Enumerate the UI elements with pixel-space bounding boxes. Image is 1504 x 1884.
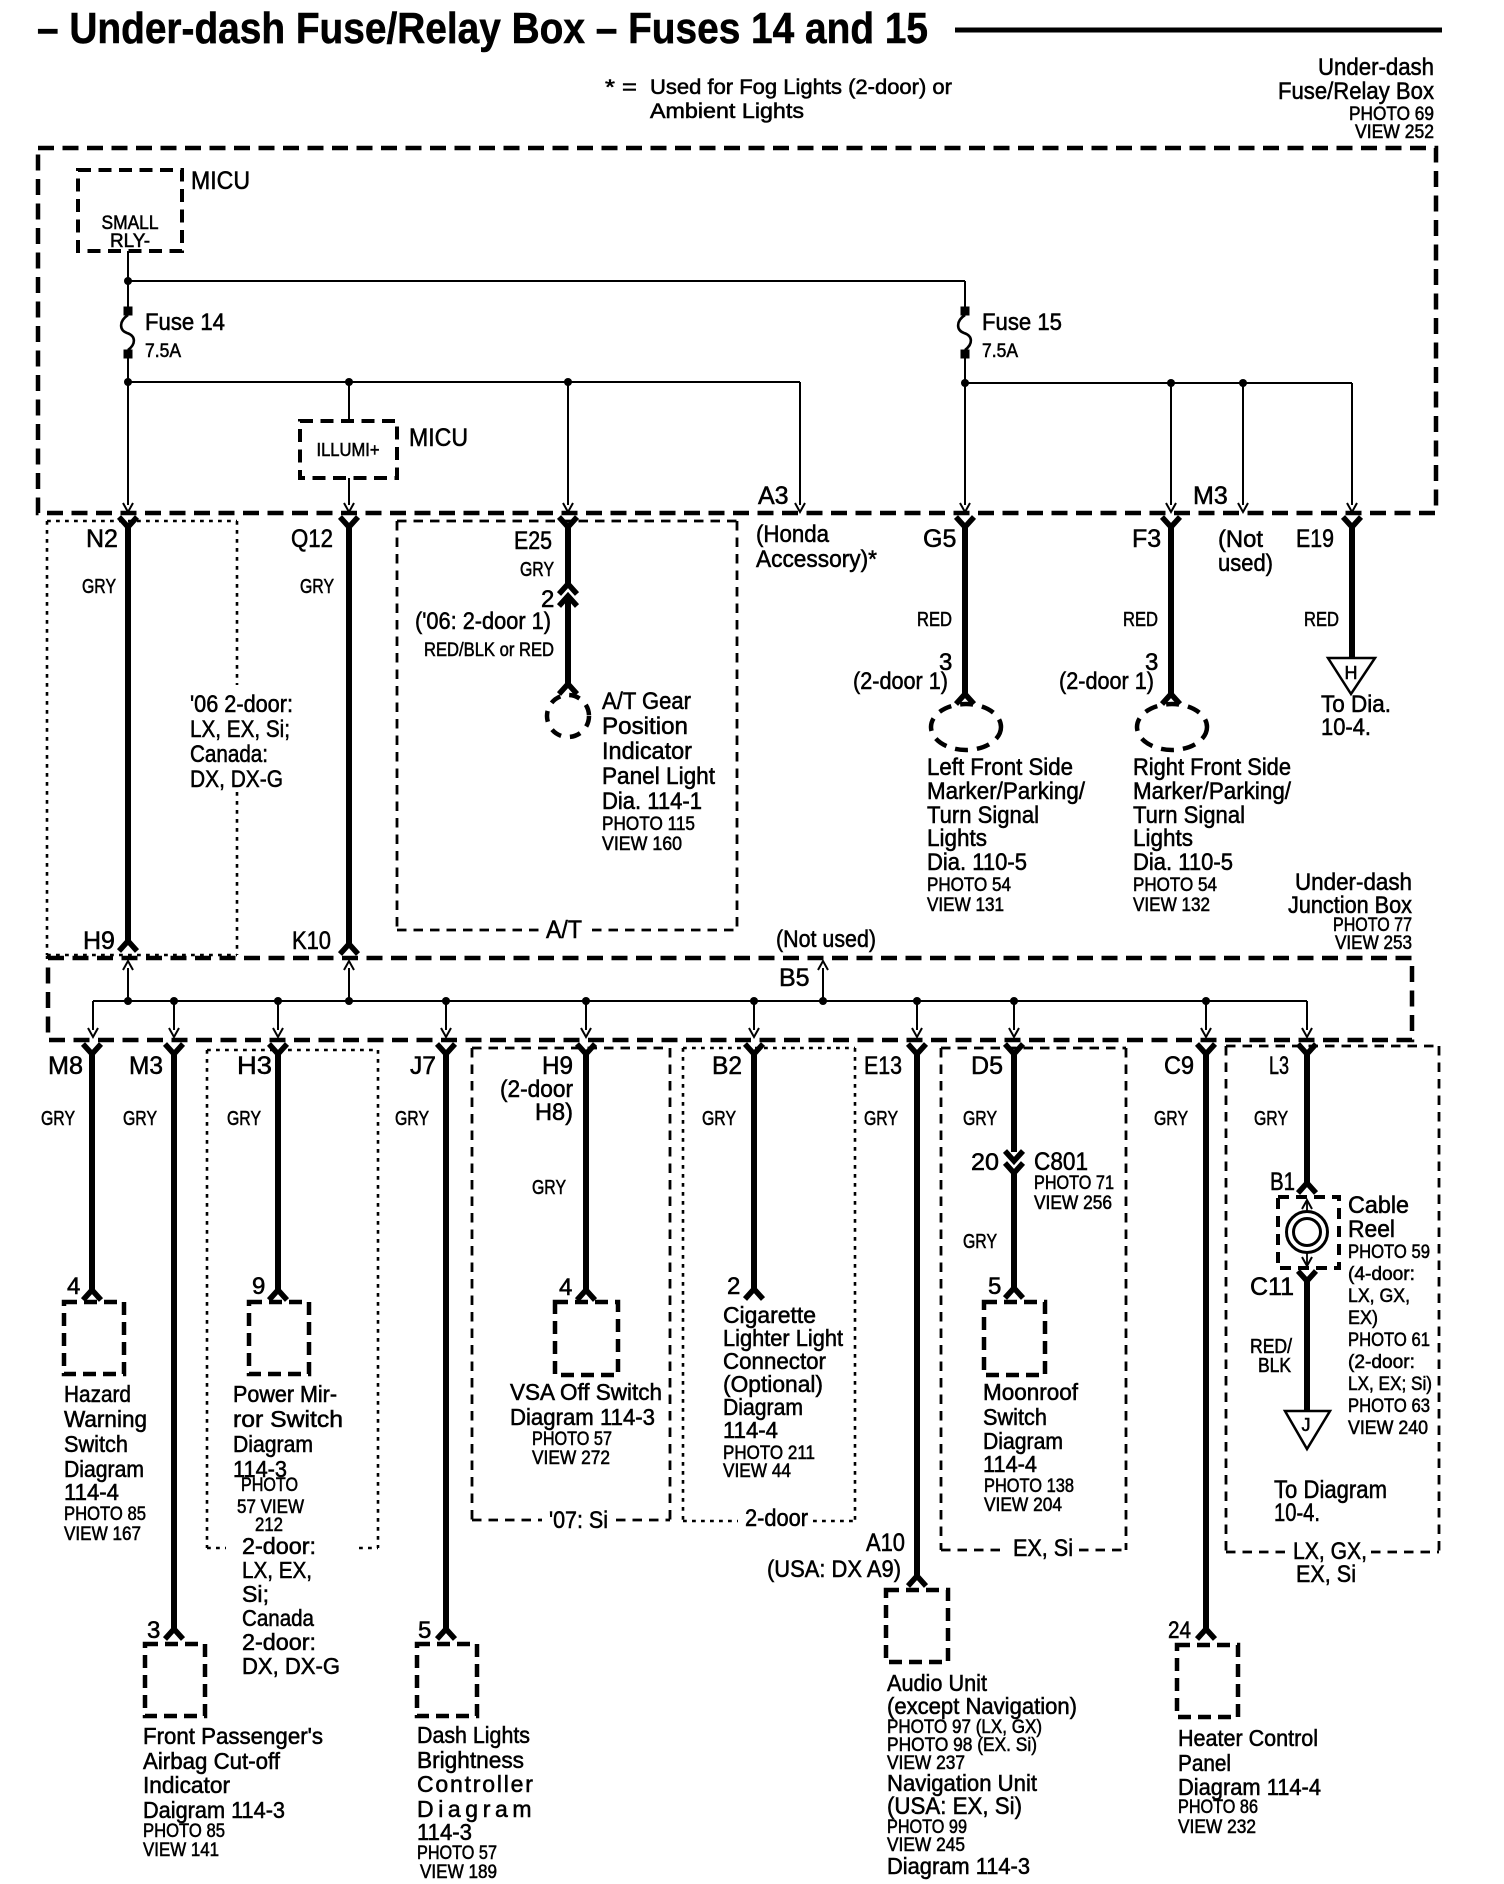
svg-text:PHOTO 138: PHOTO 138 [984, 1476, 1074, 1497]
svg-text:Si;: Si; [242, 1581, 269, 1607]
svg-text:'06 2-door:: '06 2-door: [190, 691, 293, 718]
svg-text:(2-door 1): (2-door 1) [1059, 668, 1154, 695]
svg-text:C801: C801 [1034, 1148, 1088, 1176]
svg-text:VIEW 232: VIEW 232 [1178, 1817, 1256, 1838]
svg-text:Dia. 110-5: Dia. 110-5 [1133, 849, 1233, 876]
svg-text:GRY: GRY [520, 559, 554, 581]
svg-text:GRY: GRY [1154, 1108, 1188, 1130]
svg-text:Heater Control: Heater Control [1178, 1725, 1318, 1751]
svg-text:VIEW 256: VIEW 256 [1034, 1193, 1112, 1214]
svg-text:4: 4 [559, 1274, 572, 1301]
svg-text:VIEW 131: VIEW 131 [927, 895, 1004, 916]
svg-text:LX, GX,: LX, GX, [1348, 1286, 1410, 1307]
svg-text:E19: E19 [1296, 525, 1334, 553]
svg-text:2-door:: 2-door: [242, 1533, 316, 1559]
svg-text:3: 3 [147, 1617, 160, 1644]
svg-text:Warning: Warning [64, 1406, 147, 1432]
svg-text:H: H [1345, 663, 1358, 683]
svg-text:LX, EX,: LX, EX, [242, 1557, 312, 1583]
svg-text:Fuse/Relay Box: Fuse/Relay Box [1278, 78, 1434, 105]
svg-text:PHOTO 63: PHOTO 63 [1348, 1396, 1430, 1417]
svg-text:J7: J7 [410, 1052, 436, 1080]
svg-text:(Honda: (Honda [756, 521, 830, 548]
svg-text:PHOTO 85: PHOTO 85 [64, 1504, 146, 1525]
svg-text:('06: 2-door 1): ('06: 2-door 1) [415, 608, 551, 635]
svg-text:GRY: GRY [532, 1177, 566, 1199]
svg-text:L3: L3 [1269, 1052, 1289, 1080]
svg-text:VIEW 272: VIEW 272 [532, 1448, 610, 1469]
svg-text:PHOTO 54: PHOTO 54 [927, 875, 1011, 896]
svg-text:E25: E25 [514, 527, 552, 555]
svg-text:BLK: BLK [1258, 1355, 1292, 1377]
svg-text:EX, Si: EX, Si [1296, 1561, 1356, 1588]
svg-text:(USA: DX A9): (USA: DX A9) [767, 1556, 901, 1583]
svg-text:VIEW 240: VIEW 240 [1348, 1418, 1428, 1439]
svg-text:RED/BLK or RED: RED/BLK or RED [424, 640, 554, 661]
svg-text:4: 4 [67, 1273, 80, 1300]
svg-text:Front Passenger's: Front Passenger's [143, 1723, 323, 1749]
svg-text:Indicator: Indicator [143, 1772, 230, 1798]
svg-text:Controller: Controller [417, 1771, 535, 1797]
svg-text:F3: F3 [1132, 525, 1161, 553]
svg-text:Dia. 114-1: Dia. 114-1 [602, 788, 702, 815]
svg-text:G5: G5 [923, 525, 956, 553]
svg-text:VIEW 141: VIEW 141 [143, 1840, 219, 1861]
svg-text:GRY: GRY [702, 1108, 736, 1130]
svg-text:A10: A10 [866, 1529, 905, 1557]
svg-text:Brightness: Brightness [417, 1747, 524, 1773]
svg-text:DX, DX-G: DX, DX-G [242, 1653, 340, 1679]
svg-text:10-4.: 10-4. [1321, 714, 1371, 741]
svg-text:GRY: GRY [82, 576, 116, 598]
svg-text:ror Switch: ror Switch [233, 1406, 343, 1432]
svg-text:used): used) [1218, 550, 1273, 577]
svg-text:MICU: MICU [191, 167, 250, 195]
svg-text:7.5A: 7.5A [145, 341, 181, 362]
svg-text:Used for Fog Lights (2-door) o: Used for Fog Lights (2-door) or [650, 76, 952, 99]
svg-text:GRY: GRY [1254, 1108, 1288, 1130]
svg-text:114-4: 114-4 [723, 1417, 778, 1443]
svg-text:PHOTO 54: PHOTO 54 [1133, 875, 1217, 896]
svg-text:Lights: Lights [927, 825, 987, 852]
svg-text:24: 24 [1168, 1617, 1191, 1644]
svg-text:VIEW 44: VIEW 44 [723, 1461, 791, 1482]
svg-text:RLY-: RLY- [110, 231, 150, 252]
svg-text:PHOTO 85: PHOTO 85 [143, 1821, 225, 1842]
svg-text:D5: D5 [971, 1052, 1003, 1080]
svg-text:M3: M3 [1193, 482, 1228, 510]
svg-text:MICU: MICU [409, 424, 468, 452]
svg-text:Diagram 114-3: Diagram 114-3 [510, 1404, 655, 1430]
svg-text:VIEW 253: VIEW 253 [1335, 933, 1412, 954]
svg-text:A3: A3 [758, 482, 789, 510]
svg-text:Diagram 114-3: Diagram 114-3 [887, 1853, 1030, 1879]
svg-text:PHOTO 59: PHOTO 59 [1348, 1242, 1430, 1263]
svg-text:Switch: Switch [983, 1404, 1047, 1430]
svg-text:RED: RED [917, 609, 952, 631]
svg-text:GRY: GRY [123, 1108, 157, 1130]
svg-text:K10: K10 [292, 927, 331, 955]
svg-text:GRY: GRY [963, 1108, 997, 1130]
svg-text:Lights: Lights [1133, 825, 1193, 852]
svg-text:PHOTO 57: PHOTO 57 [532, 1429, 612, 1450]
svg-text:5: 5 [988, 1273, 1001, 1300]
svg-text:J: J [1302, 1415, 1311, 1435]
svg-text:RED: RED [1304, 609, 1339, 631]
svg-text:Cable: Cable [1348, 1192, 1409, 1219]
svg-text:H3: H3 [237, 1052, 272, 1080]
svg-text:Fuse 14: Fuse 14 [145, 309, 225, 336]
svg-text:DX, DX-G: DX, DX-G [190, 766, 283, 793]
svg-text:– Under-dash Fuse/Relay Box –: – Under-dash Fuse/Relay Box – Fuses 14 a… [37, 4, 928, 53]
svg-text:Left Front Side: Left Front Side [927, 754, 1073, 781]
svg-text:B1: B1 [1270, 1168, 1295, 1196]
svg-text:GRY: GRY [41, 1108, 75, 1130]
svg-text:EX, Si: EX, Si [1013, 1535, 1073, 1562]
svg-text:GRY: GRY [963, 1231, 997, 1253]
svg-text:VIEW 252: VIEW 252 [1355, 122, 1434, 143]
svg-text:2-door: 2-door [745, 1505, 808, 1532]
svg-text:Indicator: Indicator [602, 738, 692, 765]
svg-text:2-door:: 2-door: [242, 1629, 316, 1655]
svg-text:PHOTO 61: PHOTO 61 [1348, 1330, 1430, 1351]
svg-text:GRY: GRY [395, 1108, 429, 1130]
svg-text:C9: C9 [1164, 1052, 1194, 1080]
svg-text:A/T Gear: A/T Gear [602, 688, 691, 715]
svg-text:M3: M3 [129, 1052, 163, 1080]
svg-text:VIEW 189: VIEW 189 [420, 1862, 497, 1883]
svg-text:Hazard: Hazard [64, 1381, 131, 1407]
svg-text:Switch: Switch [64, 1431, 128, 1457]
svg-text:Q12: Q12 [291, 525, 333, 553]
svg-text:Panel: Panel [1178, 1750, 1231, 1776]
svg-text:Moonroof: Moonroof [983, 1379, 1079, 1405]
svg-text:Position: Position [602, 713, 688, 740]
svg-text:Reel: Reel [1348, 1216, 1395, 1243]
svg-text:20: 20 [971, 1149, 999, 1176]
svg-text:Diagram: Diagram [233, 1431, 313, 1457]
svg-text:10-4.: 10-4. [1274, 1499, 1320, 1527]
svg-text:9: 9 [252, 1273, 265, 1300]
svg-text:ILLUMI+: ILLUMI+ [317, 440, 380, 460]
svg-text:5: 5 [418, 1617, 431, 1644]
svg-text:B2: B2 [712, 1052, 742, 1080]
svg-text:VIEW 167: VIEW 167 [64, 1524, 141, 1545]
svg-text:(Not: (Not [1218, 526, 1263, 553]
svg-text:Accessory)*: Accessory)* [756, 546, 877, 573]
svg-text:'07: Si: '07: Si [549, 1507, 608, 1534]
svg-text:Airbag Cut-off: Airbag Cut-off [143, 1748, 281, 1774]
svg-text:H9: H9 [83, 927, 115, 955]
svg-text:2: 2 [727, 1273, 740, 1300]
svg-text:Under-dash: Under-dash [1318, 54, 1434, 81]
svg-text:(2-door:: (2-door: [1348, 1352, 1415, 1373]
svg-text:PHOTO 86: PHOTO 86 [1178, 1797, 1258, 1818]
svg-text:Fuse 15: Fuse 15 [982, 309, 1062, 336]
svg-text:C11: C11 [1250, 1273, 1294, 1301]
svg-text:Right Front Side: Right Front Side [1133, 754, 1291, 781]
svg-text:PHOTO 115: PHOTO 115 [602, 814, 695, 835]
svg-text:(4-door:: (4-door: [1348, 1264, 1415, 1285]
svg-text:(Not used): (Not used) [776, 926, 876, 953]
svg-text:* =: * = [605, 76, 637, 99]
svg-text:7.5A: 7.5A [982, 341, 1018, 362]
svg-text:PHOTO 71: PHOTO 71 [1034, 1173, 1114, 1194]
svg-text:VIEW 160: VIEW 160 [602, 834, 682, 855]
svg-text:114-4: 114-4 [64, 1479, 119, 1505]
svg-text:Marker/Parking/: Marker/Parking/ [1133, 778, 1291, 805]
svg-text:(2-door 1): (2-door 1) [853, 668, 948, 695]
svg-text:PHOTO 57: PHOTO 57 [417, 1843, 497, 1864]
svg-text:PHOTO: PHOTO [241, 1475, 298, 1496]
svg-text:A/T: A/T [546, 916, 582, 944]
svg-text:Dia. 110-5: Dia. 110-5 [927, 849, 1027, 876]
svg-text:Power Mir-: Power Mir- [233, 1381, 337, 1407]
svg-text:VIEW 204: VIEW 204 [984, 1495, 1062, 1516]
svg-text:RED: RED [1123, 609, 1158, 631]
svg-text:(except Navigation): (except Navigation) [887, 1693, 1077, 1719]
svg-text:Canada:: Canada: [190, 741, 268, 768]
svg-text:Ambient Lights: Ambient Lights [650, 100, 804, 123]
svg-text:EX): EX) [1348, 1308, 1378, 1329]
svg-text:B5: B5 [779, 964, 810, 992]
svg-text:M8: M8 [48, 1052, 83, 1080]
svg-text:H8): H8) [535, 1099, 573, 1126]
svg-text:VIEW 132: VIEW 132 [1133, 895, 1210, 916]
svg-text:114-4: 114-4 [983, 1451, 1037, 1477]
svg-text:GRY: GRY [227, 1108, 261, 1130]
svg-text:VSA Off Switch: VSA Off Switch [510, 1379, 662, 1405]
svg-text:(USA: EX, Si): (USA: EX, Si) [887, 1793, 1022, 1820]
svg-text:114-3: 114-3 [417, 1819, 472, 1845]
svg-text:Marker/Parking/: Marker/Parking/ [927, 778, 1085, 805]
svg-text:LX, EX, Si;: LX, EX, Si; [190, 716, 290, 743]
svg-text:Daigram 114-3: Daigram 114-3 [143, 1797, 285, 1823]
svg-text:Canada: Canada [242, 1605, 314, 1631]
svg-text:Dash Lights: Dash Lights [417, 1722, 530, 1748]
svg-text:GRY: GRY [300, 576, 334, 598]
svg-text:LX, EX; Si): LX, EX; Si) [1348, 1374, 1432, 1395]
svg-text:E13: E13 [864, 1052, 902, 1080]
svg-text:N2: N2 [86, 525, 118, 553]
svg-text:Panel Light: Panel Light [602, 763, 715, 790]
svg-text:GRY: GRY [864, 1108, 898, 1130]
